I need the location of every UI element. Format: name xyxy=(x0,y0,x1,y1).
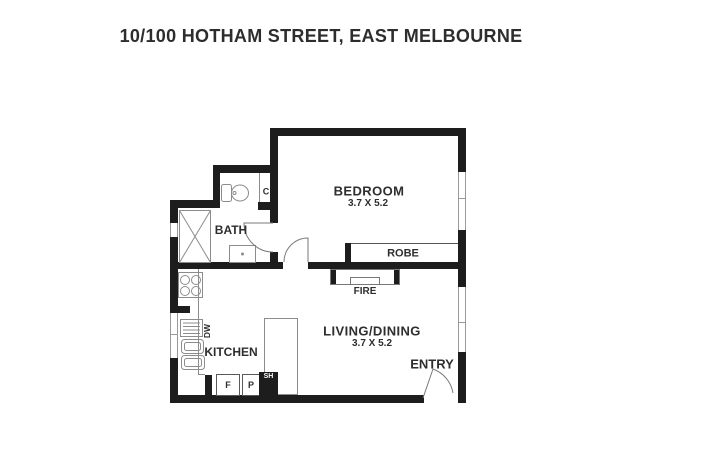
cooktop-burner xyxy=(181,276,190,285)
pantry-label: P xyxy=(248,380,254,390)
entry-label: ENTRY xyxy=(410,358,454,371)
cooktop-burner xyxy=(192,276,201,285)
shelf-box: SH xyxy=(259,372,278,396)
bath-label: BATH xyxy=(215,224,247,236)
toilet-bowl xyxy=(232,185,249,201)
living-label: LIVING/DINING xyxy=(323,325,421,338)
fire-label: FIRE xyxy=(354,287,377,297)
fridge-label: F xyxy=(225,380,231,390)
toilet-cistern xyxy=(222,185,232,202)
bedroom-label: BEDROOM xyxy=(334,185,405,198)
living-dimensions: 3.7 X 5.2 xyxy=(352,339,392,349)
fridge-box: F xyxy=(216,374,240,396)
bath-door xyxy=(244,223,273,252)
vanity-basin-dot xyxy=(242,253,244,255)
entry-door xyxy=(423,369,453,398)
floor-plan-page: 10/100 HOTHAM STREET, EAST MELBOURNE xyxy=(0,0,703,472)
robe-label: ROBE xyxy=(387,249,419,260)
fixtures-layer xyxy=(0,0,703,472)
pantry-box: P xyxy=(242,374,260,396)
kitchen-label: KITCHEN xyxy=(204,346,257,358)
bedroom-dimensions: 3.7 X 5.2 xyxy=(348,199,388,209)
dishwasher-label: DW xyxy=(203,324,212,338)
toilet-button xyxy=(233,192,236,195)
shelf-label: SH xyxy=(264,373,274,380)
cooktop-burner xyxy=(181,287,190,296)
cooktop-burner xyxy=(192,287,201,296)
fireplace-inner xyxy=(351,278,380,285)
bedroom-door xyxy=(284,238,308,262)
cupboard-label: C xyxy=(263,188,270,197)
